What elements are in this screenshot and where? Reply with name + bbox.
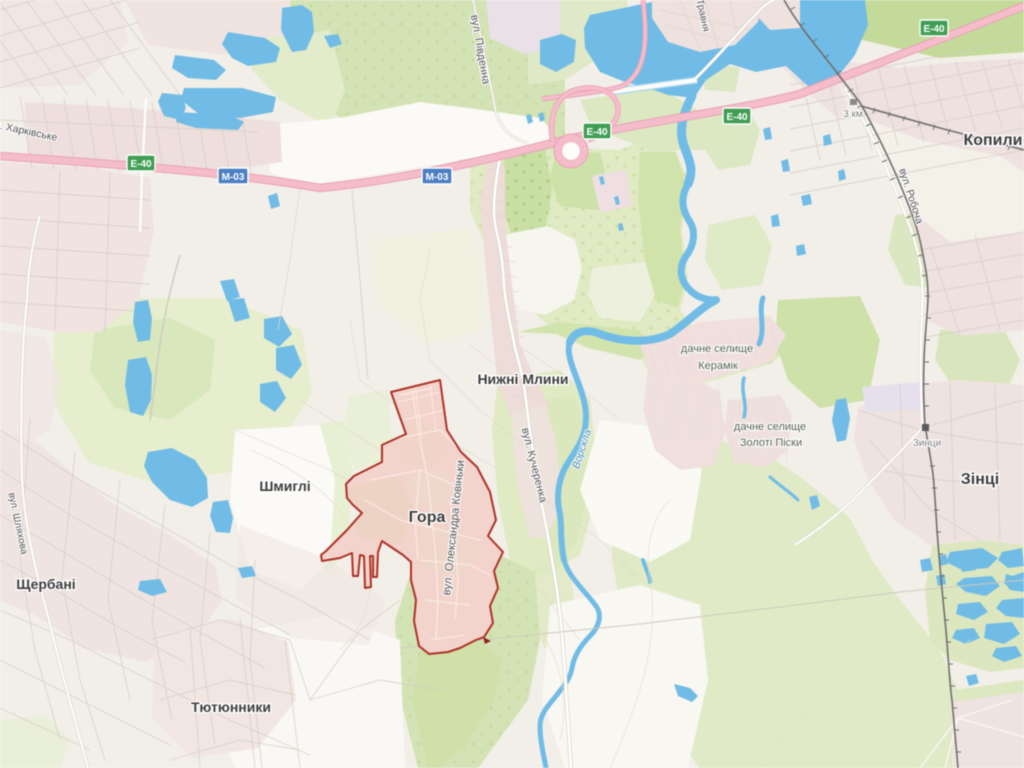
svg-text:дачне селище: дачне селище (734, 421, 806, 433)
svg-text:Керамік: Керамік (698, 360, 738, 372)
svg-text:Нижні Млини: Нижні Млини (477, 371, 568, 387)
svg-text:E-40: E-40 (130, 159, 152, 170)
svg-text:Тютюнники: Тютюнники (191, 699, 271, 715)
svg-text:Зінці: Зінці (961, 471, 999, 488)
svg-text:М-03: М-03 (222, 172, 245, 183)
svg-text:Гора: Гора (409, 509, 446, 526)
svg-text:М-03: М-03 (426, 172, 449, 183)
svg-text:E-40: E-40 (726, 112, 748, 123)
svg-text:3 км: 3 км (843, 109, 863, 120)
svg-text:Шмиглі: Шмиглі (259, 478, 310, 494)
svg-text:дачне селище: дачне селище (681, 343, 753, 355)
svg-text:E-40: E-40 (923, 24, 945, 35)
svg-text:E-40: E-40 (586, 127, 608, 138)
svg-text:Зинци: Зинци (913, 438, 941, 449)
svg-text:Щербані: Щербані (16, 576, 75, 592)
svg-text:Золоті Піски: Золоті Піски (740, 437, 802, 449)
svg-text:Копили: Копили (963, 132, 1022, 149)
